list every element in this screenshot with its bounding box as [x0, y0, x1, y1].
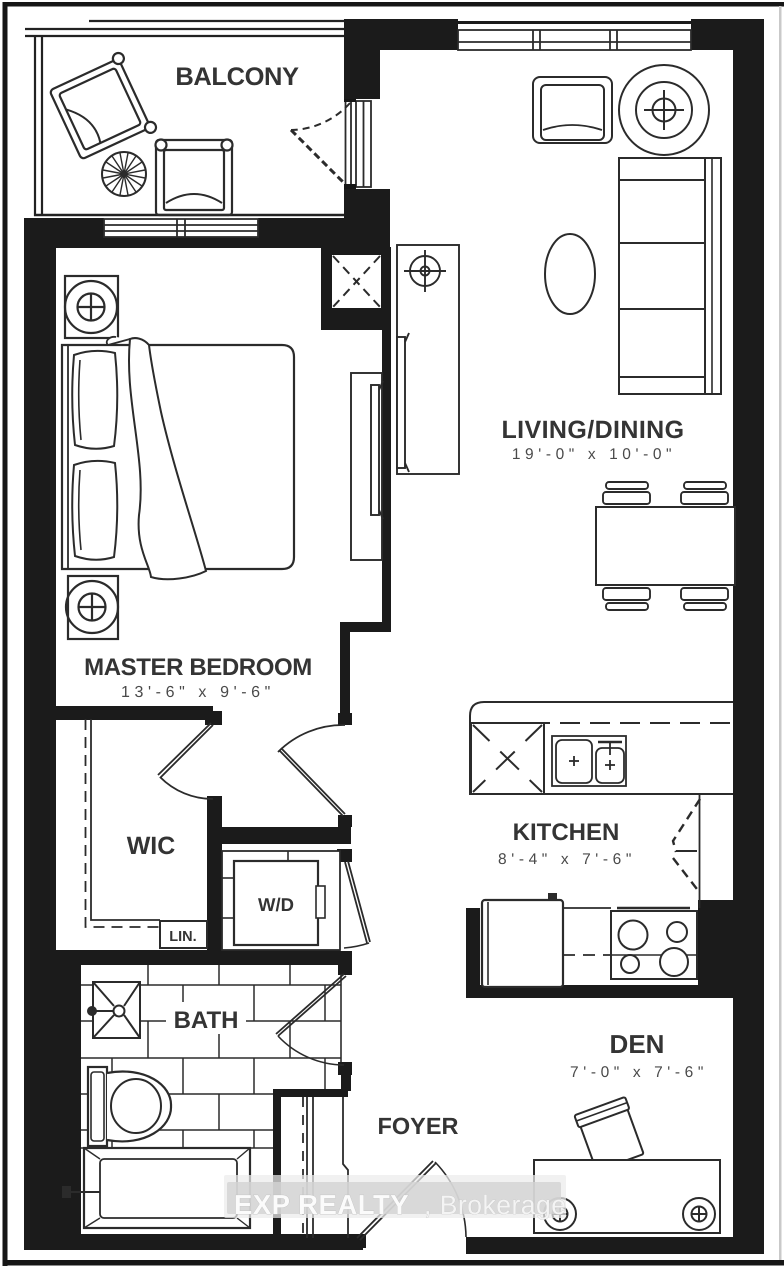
svg-text:KITCHEN: KITCHEN: [513, 819, 620, 846]
svg-text:FOYER: FOYER: [378, 1113, 459, 1139]
svg-text:19'-0" x 10'-0": 19'-0" x 10'-0": [512, 446, 676, 463]
svg-text:7'-0" x 7'-6": 7'-0" x 7'-6": [570, 1064, 708, 1081]
svg-text:W/D: W/D: [258, 894, 294, 915]
svg-text:13'-6" x 9'-6": 13'-6" x 9'-6": [121, 684, 275, 701]
svg-text:BALCONY: BALCONY: [175, 63, 299, 91]
svg-text:EXP REALTY: EXP REALTY: [234, 1189, 409, 1220]
svg-text:, Brokerage: , Brokerage: [424, 1190, 567, 1220]
svg-text:8'-4" x 7'-6": 8'-4" x 7'-6": [498, 851, 636, 868]
svg-text:WIC: WIC: [127, 832, 176, 860]
svg-text:LIN.: LIN.: [169, 929, 196, 945]
svg-text:MASTER BEDROOM: MASTER BEDROOM: [84, 654, 312, 681]
svg-text:BATH: BATH: [174, 1007, 239, 1034]
svg-text:LIVING/DINING: LIVING/DINING: [502, 416, 685, 444]
svg-text:DEN: DEN: [610, 1029, 665, 1059]
